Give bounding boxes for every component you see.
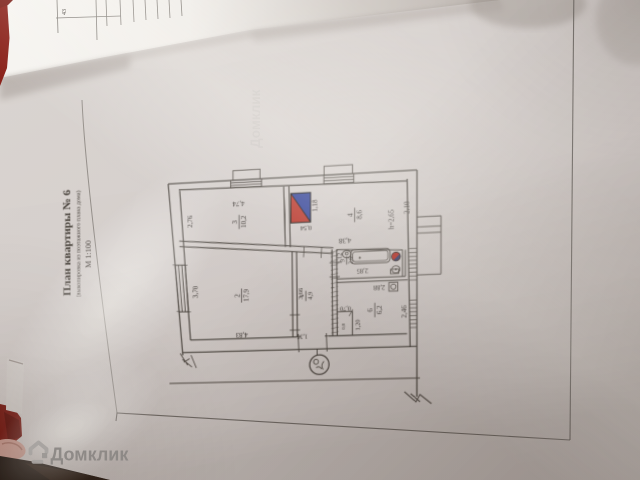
svg-text:Домклик: Домклик (51, 445, 130, 465)
